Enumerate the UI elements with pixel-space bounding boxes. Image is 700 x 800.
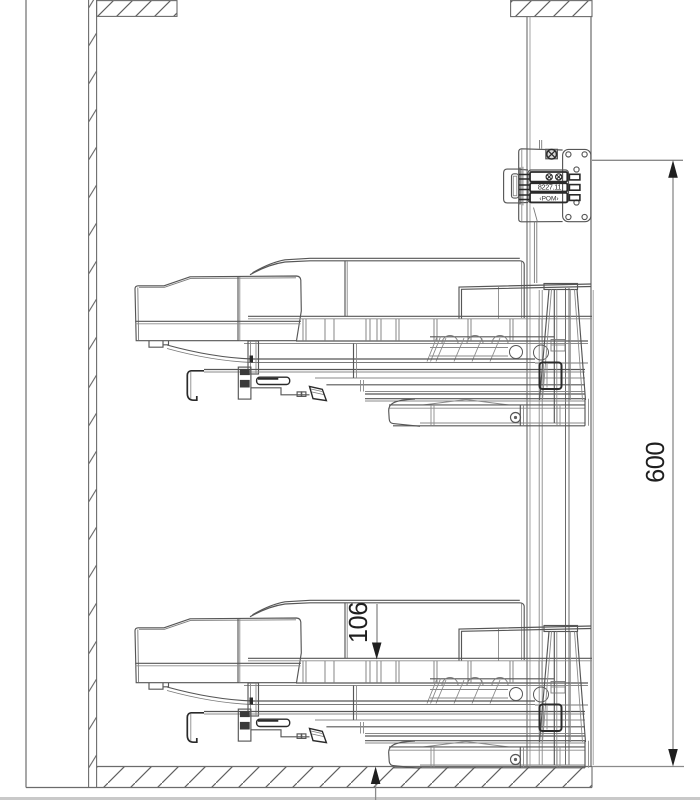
svg-text:‹POM›: ‹POM› [539, 195, 558, 202]
svg-text:600: 600 [642, 442, 670, 483]
svg-text:8227.11: 8227.11 [538, 182, 562, 191]
svg-text:106: 106 [345, 602, 373, 643]
